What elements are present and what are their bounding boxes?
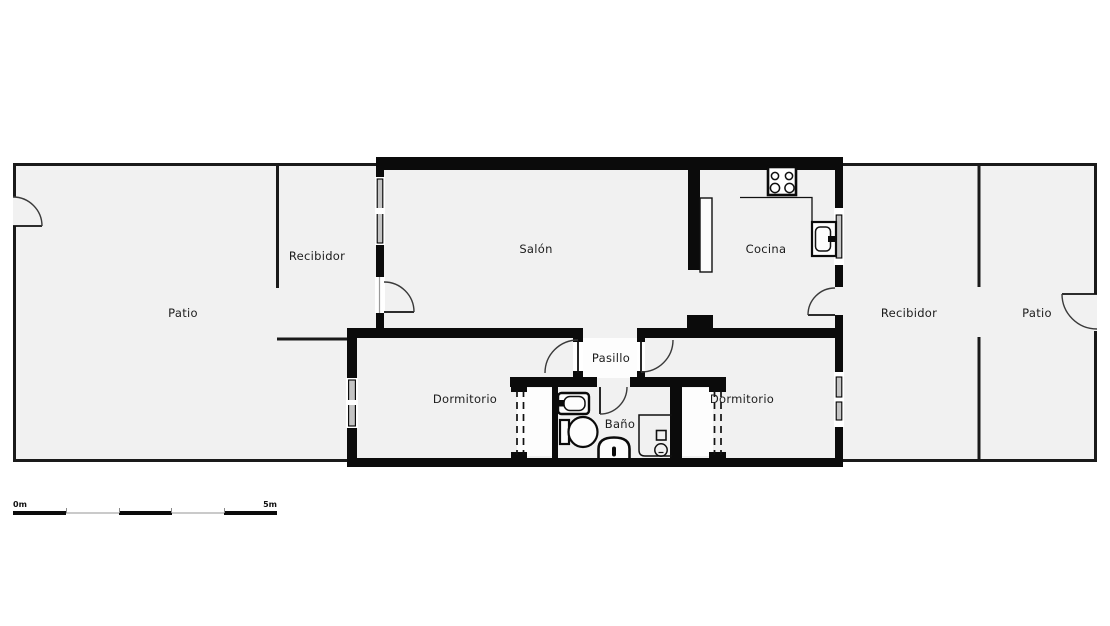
- right-main-wall-3: [835, 315, 843, 372]
- mid-wall-left: [347, 328, 573, 338]
- room-label-patio-left: Patio: [168, 306, 198, 320]
- room-label-pasillo: Pasillo: [592, 351, 630, 365]
- salon-window: [375, 177, 385, 245]
- dormitorio-left-window: [346, 378, 358, 428]
- bano-right-wall: [670, 387, 682, 458]
- scale-segment-3: [119, 511, 172, 515]
- wardrobe-left-floor: [517, 388, 553, 456]
- dormitorio-left-wall-top: [347, 328, 357, 378]
- cocina-column: [687, 315, 713, 333]
- kitchen-sink-icon: [812, 222, 837, 256]
- salon-cocina-wall: [688, 157, 700, 270]
- scale-segment-1: [13, 511, 66, 515]
- kitchen-cabinet-leaf: [700, 198, 712, 272]
- room-label-dormitorio-right: Dormitorio: [710, 392, 774, 406]
- dormitorio-right-window: [834, 372, 844, 427]
- pasillo-right-jamb-top: [637, 328, 645, 342]
- right-main-wall-2: [835, 265, 843, 287]
- room-label-recibidor-left: Recibidor: [289, 249, 345, 263]
- wardrobe-right-jamb-top: [709, 377, 726, 392]
- salon-left-wall-top: [376, 157, 384, 178]
- room-label-salon: Salón: [519, 242, 552, 256]
- toilet-icon: [560, 417, 598, 447]
- scale-segment-5: [224, 511, 277, 515]
- wardrobe-right-jamb-bottom: [709, 452, 726, 466]
- right-main-wall-1: [835, 157, 843, 208]
- room-label-patio-right: Patio: [1022, 306, 1052, 320]
- room-label-dormitorio-left: Dormitorio: [433, 392, 497, 406]
- mid-wall-right: [645, 328, 843, 338]
- bidet-icon: [599, 438, 630, 459]
- room-label-cocina: Cocina: [746, 242, 787, 256]
- room-label-recibidor-right: Recibidor: [881, 306, 937, 320]
- scale-end-label: 5m: [263, 500, 277, 509]
- room-label-bano: Baño: [605, 417, 635, 431]
- scale-bar: 0m 5m: [13, 500, 277, 515]
- bathroom-sink-icon: [556, 393, 589, 414]
- wardrobe-left-jamb-bottom: [511, 452, 527, 466]
- wardrobe-right-floor: [682, 388, 713, 456]
- scale-start-label: 0m: [13, 500, 27, 509]
- wardrobe-left-jamb-top: [511, 377, 527, 392]
- bottom-wall: [347, 458, 843, 467]
- stove-icon: [768, 167, 796, 195]
- right-main-wall-4: [835, 427, 843, 462]
- floor-plan-canvas: Patio Recibidor Salón Cocina Recibidor P…: [0, 0, 1110, 626]
- salon-left-wall-mid: [376, 245, 384, 277]
